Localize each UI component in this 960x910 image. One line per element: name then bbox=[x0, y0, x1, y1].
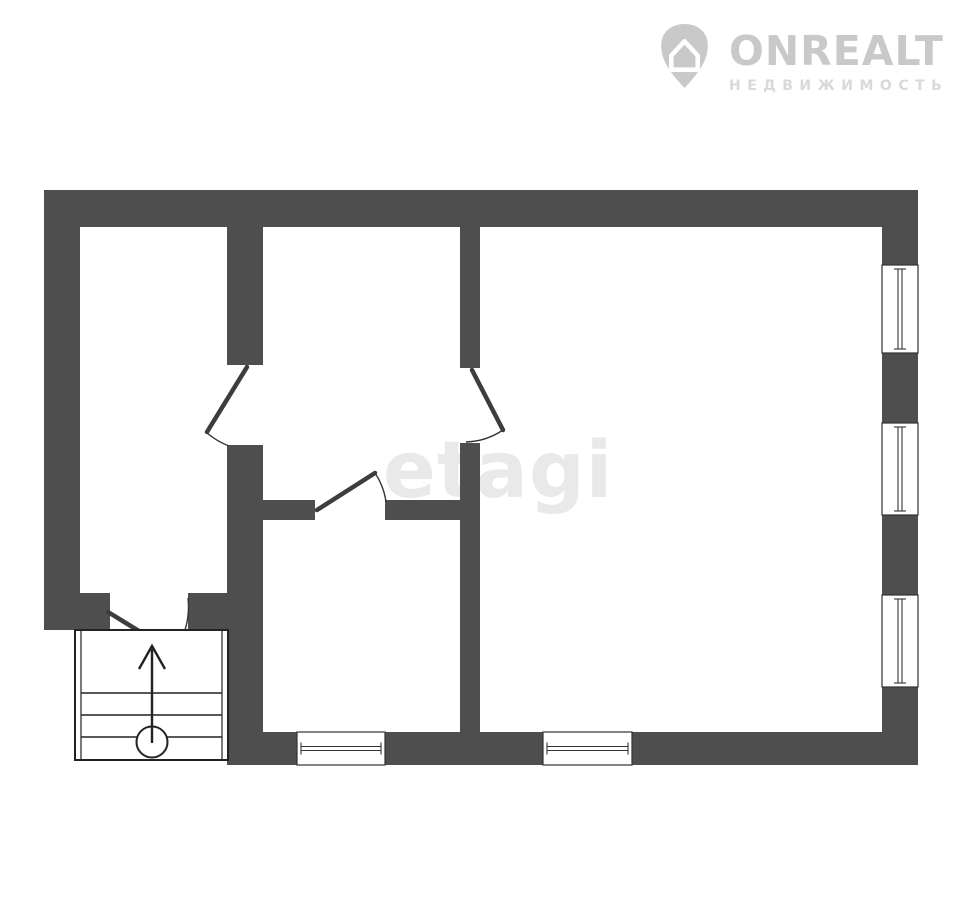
wall-segment bbox=[460, 443, 480, 732]
wall-segment bbox=[263, 500, 315, 520]
middle-room-door-leaf bbox=[317, 473, 375, 510]
window bbox=[882, 265, 918, 353]
floor-plan-drawing bbox=[0, 0, 960, 910]
wall-segment bbox=[188, 593, 227, 630]
wall-segment bbox=[632, 732, 918, 765]
wall-segment bbox=[385, 732, 543, 765]
wall-segment bbox=[882, 687, 918, 732]
wall-segment bbox=[460, 227, 480, 368]
window bbox=[882, 423, 918, 515]
right-room-door-leaf bbox=[472, 370, 503, 430]
wall-segment bbox=[44, 190, 918, 227]
wall-segment bbox=[227, 227, 263, 365]
left-room-door-swing-arc bbox=[207, 433, 229, 446]
wall-segment bbox=[227, 732, 297, 765]
wall-segment bbox=[385, 500, 460, 520]
window bbox=[297, 732, 385, 765]
listing-floor-plan-page: { "page": { "width": 960, "height": 910,… bbox=[0, 0, 960, 910]
wall-segment bbox=[44, 593, 110, 630]
wall-segment bbox=[227, 445, 263, 765]
left-room-door-leaf bbox=[207, 367, 247, 432]
right-room-door-swing-arc bbox=[466, 430, 503, 442]
window bbox=[543, 732, 632, 765]
window bbox=[882, 595, 918, 687]
wall-segment bbox=[44, 227, 80, 593]
wall-segment bbox=[882, 515, 918, 595]
wall-segment bbox=[882, 353, 918, 423]
wall-segment bbox=[882, 227, 918, 265]
middle-room-door-swing-arc bbox=[375, 473, 386, 502]
